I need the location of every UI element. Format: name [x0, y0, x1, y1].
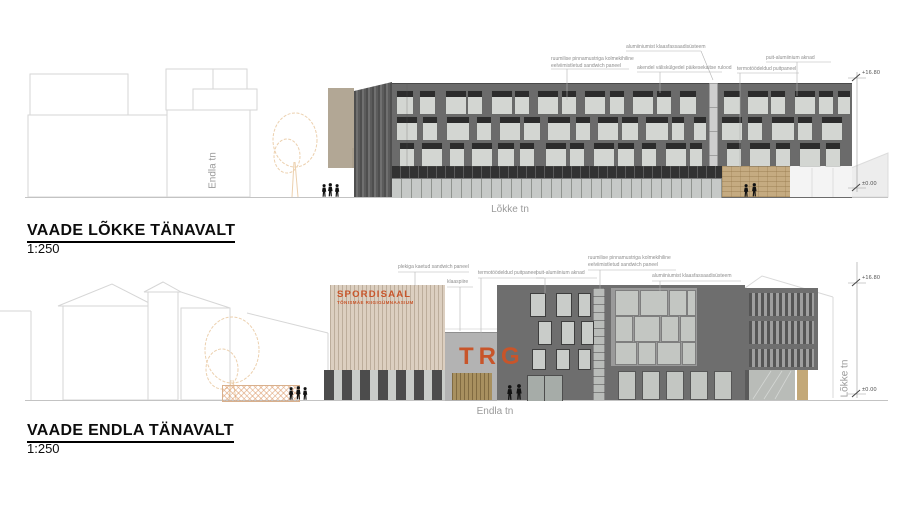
street-label-lokke: Lõkke tn — [470, 204, 550, 215]
annotation-wood-panel: termotöödeldud puitpaneel — [737, 66, 796, 73]
annotation-solar-blinds: akendel väliskülgedel päikesekaitse rulo… — [637, 65, 732, 72]
elevation-title-endla: VAADE ENDLA TÄNAVALT — [27, 422, 234, 443]
glass-reflection-lines — [753, 371, 791, 399]
people-group-top-right — [744, 183, 757, 197]
building-sign-line2: TÕNISMÄE RIIGIGÜMNAASIUM — [337, 300, 414, 305]
annotation-sandwich-panel: ruumilise pinnamustriga kolmekihiline ee… — [551, 56, 634, 69]
annotation-sheet-metal-panel: plekiga kaetud sandwich paneel — [398, 264, 469, 271]
annotation-wood-alu-windows: puit-alumiinium aknad — [766, 55, 815, 62]
level-marker-top: +16.80 — [862, 70, 880, 76]
annotation-glass-facade-system: alumiiniumist klaasfassaadisüsteem — [652, 273, 731, 280]
street-label-lokke-vertical: Lõkke tn — [840, 349, 851, 409]
people-group-entrance — [507, 384, 521, 400]
annotation-glass-facade-system: alumiiniumist klaasfassaadisüsteem — [626, 44, 705, 51]
street-label-endla-vertical: Endla tn — [208, 141, 219, 201]
elevation-scale-lokke: 1:250 — [27, 241, 60, 256]
building-logo-trg: TRG — [459, 343, 525, 371]
people-group-bottom-left — [289, 386, 307, 400]
annotation-glass-railing: klaaspiire — [447, 279, 468, 286]
street-label-endla: Endla tn — [455, 406, 535, 417]
elevation-title-lokke: VAADE LÕKKE TÄNAVALT — [27, 222, 235, 243]
dimension-line-bottom — [848, 262, 866, 398]
building-sign-line1: SPORDISAAL — [337, 289, 411, 300]
level-marker-top: +16.80 — [862, 275, 880, 281]
leader-lines-top — [407, 51, 833, 197]
level-marker-ground: ±0.00 — [862, 181, 877, 187]
people-group-top-left — [322, 183, 339, 197]
elevation-scale-endla: 1:250 — [27, 441, 60, 456]
level-marker-ground: ±0.00 — [862, 387, 877, 393]
elevation-drawing-sheet: ruumilise pinnamustriga kolmekihiline ee… — [0, 0, 900, 506]
dimension-line-top — [848, 72, 866, 192]
annotation-wood-alu-windows: puit-alumiinium aknad — [536, 270, 585, 277]
annotation-wood-panel: termotöödeldud puitpaneel — [478, 270, 537, 277]
annotation-sandwich-panel: ruumilise pinnamustriga kolmekihiline ee… — [588, 255, 671, 268]
